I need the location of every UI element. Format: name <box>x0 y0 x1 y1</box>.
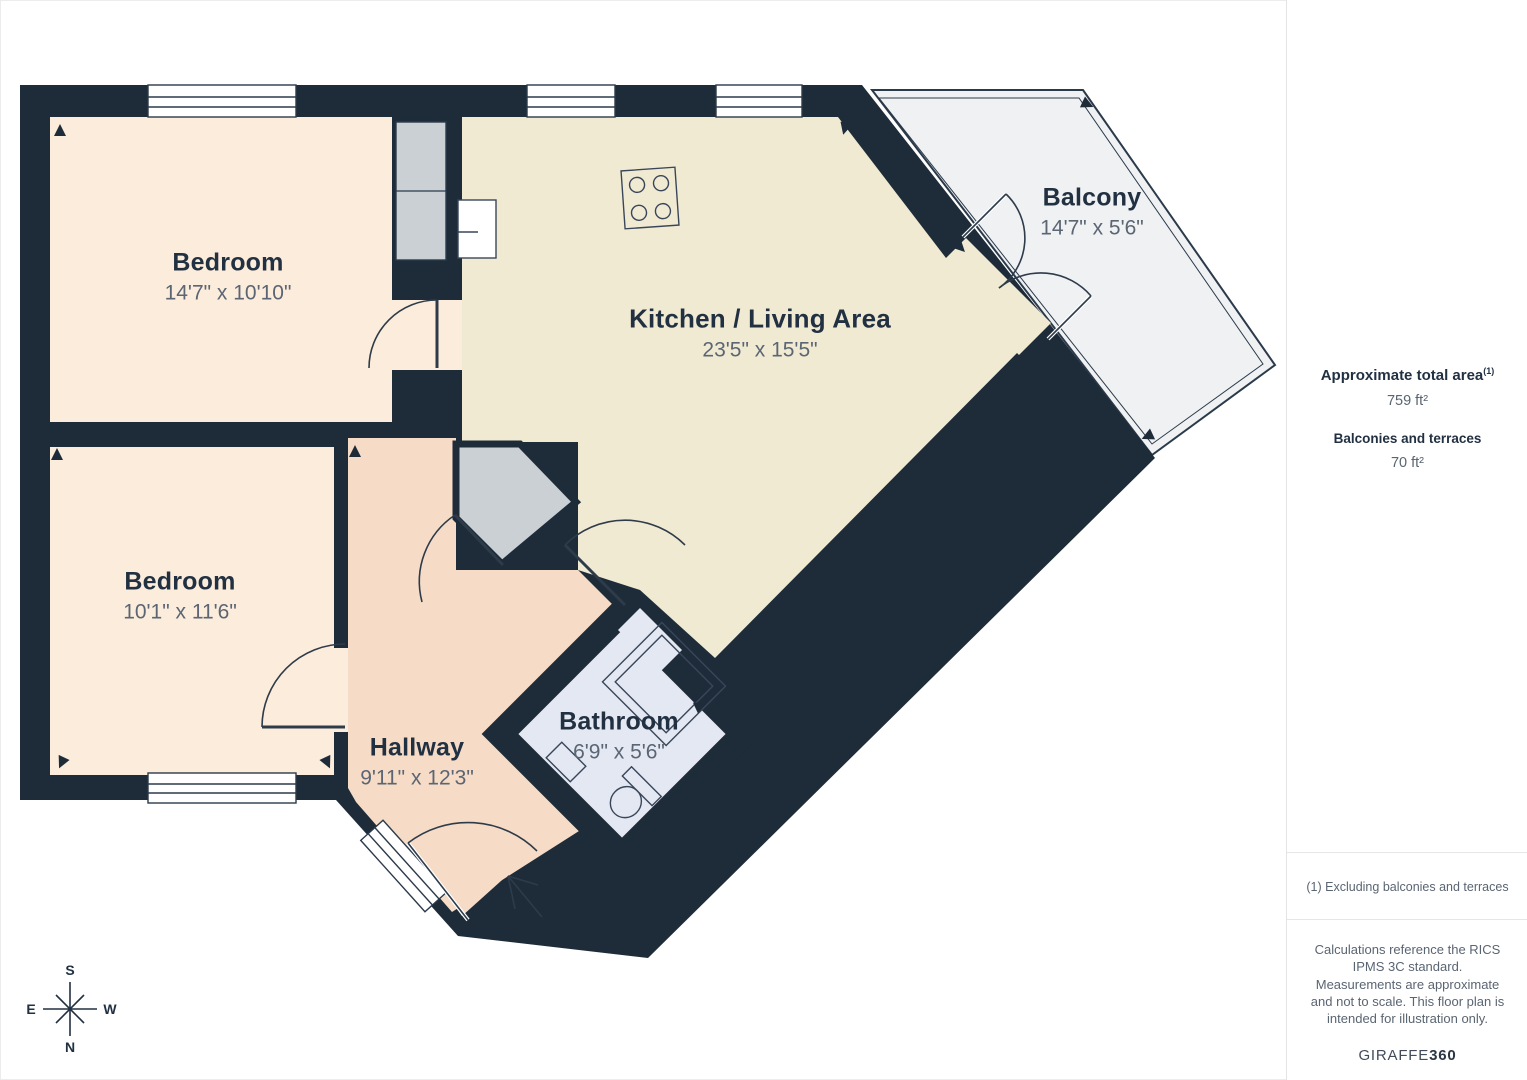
brand-logo: GIRAFFE360 <box>1287 1047 1527 1064</box>
info-sidebar: Approximate total area(1) 759 ft² Balcon… <box>1286 0 1527 1080</box>
compass-icon: S N E W <box>22 960 118 1056</box>
balconies-label: Balconies and terraces <box>1287 431 1527 446</box>
window-top-1 <box>148 85 296 117</box>
area-summary: Approximate total area(1) 759 ft² Balcon… <box>1287 366 1527 471</box>
total-area-value: 759 ft² <box>1287 393 1527 409</box>
window-bottom <box>148 773 296 803</box>
window-top-3 <box>716 85 802 117</box>
kitchen-sink-icon <box>458 200 496 258</box>
window-top-2 <box>527 85 615 117</box>
total-area-superscript: (1) <box>1483 366 1494 376</box>
brand-number: 360 <box>1429 1047 1456 1064</box>
footnote-section: (1) Excluding balconies and terraces <box>1287 852 1527 920</box>
total-area-label: Approximate total area(1) <box>1287 366 1527 384</box>
compass-west: W <box>103 1001 116 1017</box>
footnote-text: (1) Excluding balconies and terraces <box>1306 880 1508 894</box>
room-bedroom-1-floor <box>50 117 392 422</box>
disclaimer-text: Calculations reference the RICS IPMS 3C … <box>1310 941 1506 1027</box>
disclaimer-section: Calculations reference the RICS IPMS 3C … <box>1287 919 1527 1080</box>
compass-north: N <box>65 1039 75 1055</box>
floor-plan-svg <box>0 0 1286 1080</box>
total-area-text: Approximate total area <box>1321 367 1484 384</box>
bedroom-1-door-opening <box>392 300 462 370</box>
brand-name: GIRAFFE <box>1358 1047 1429 1064</box>
floor-plan: Bedroom 14'7" x 10'10" Bedroom 10'1" x 1… <box>0 0 1286 1080</box>
compass-south: S <box>65 962 74 978</box>
balconies-value: 70 ft² <box>1287 455 1527 471</box>
floorplan-page: Bedroom 14'7" x 10'10" Bedroom 10'1" x 1… <box>0 0 1527 1080</box>
compass-east: E <box>26 1001 35 1017</box>
bedroom-2-door-opening <box>334 648 348 732</box>
